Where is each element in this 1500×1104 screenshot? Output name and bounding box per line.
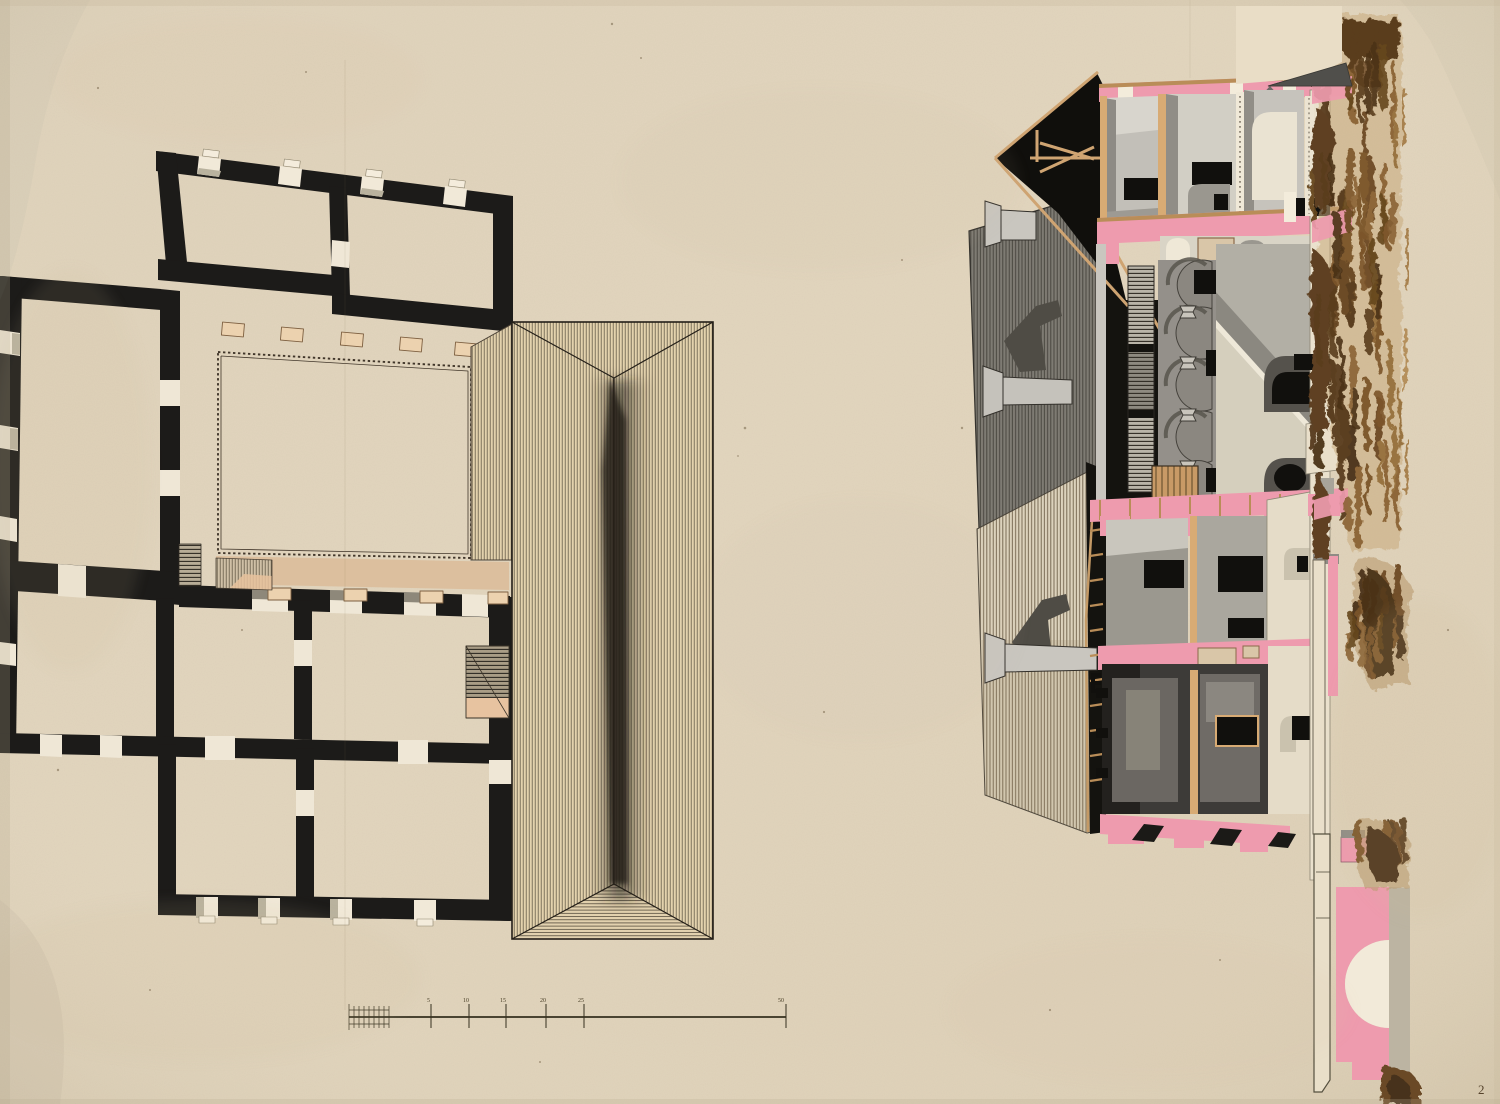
svg-text:2: 2: [1478, 1082, 1485, 1097]
svg-text:50: 50: [778, 998, 784, 1004]
svg-text:5: 5: [427, 998, 430, 1004]
svg-text:10: 10: [463, 998, 469, 1004]
svg-text:25: 25: [578, 998, 584, 1004]
svg-text:20: 20: [540, 998, 546, 1004]
svg-text:15: 15: [500, 998, 506, 1004]
